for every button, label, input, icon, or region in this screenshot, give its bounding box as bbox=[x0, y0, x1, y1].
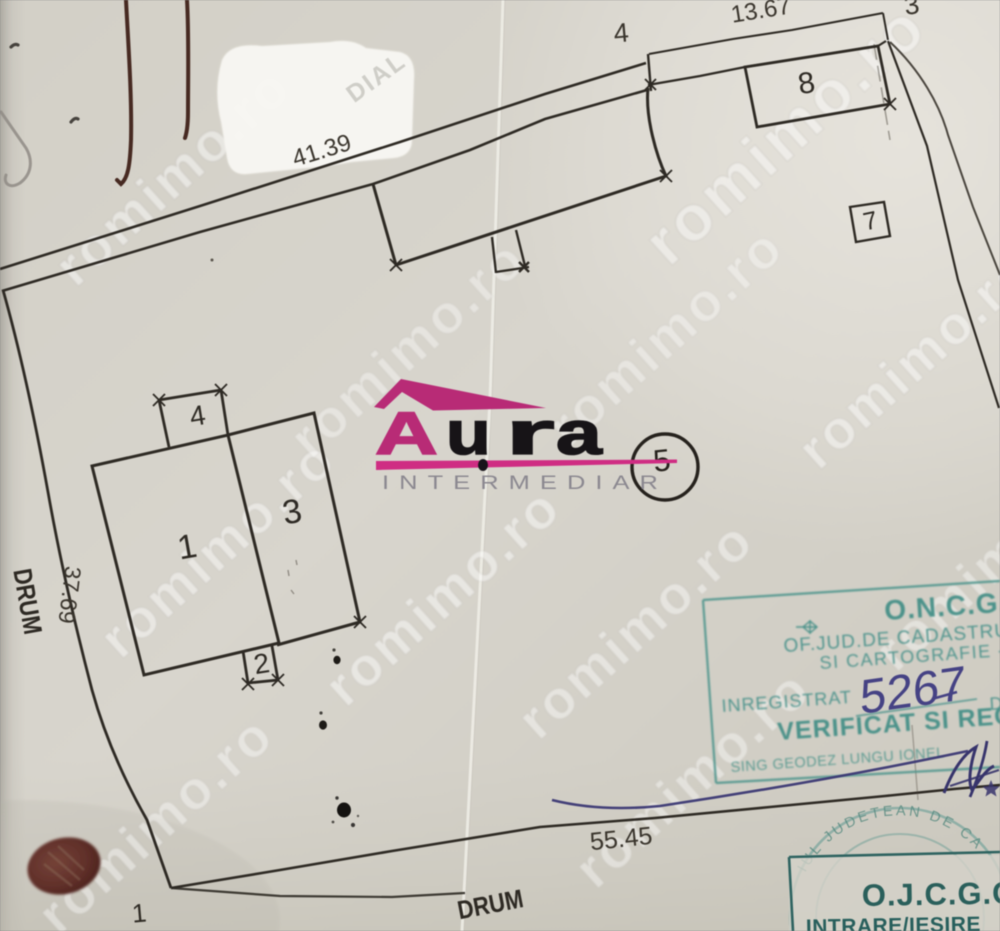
svg-text:INTERMEDIAR: INTERMEDIAR bbox=[382, 473, 668, 494]
svg-text:u: u bbox=[446, 400, 491, 468]
svg-text:1: 1 bbox=[131, 897, 148, 928]
svg-text:r: r bbox=[505, 399, 555, 467]
svg-text:O.J.C.G.C: O.J.C.G.C bbox=[862, 875, 1000, 913]
svg-text:A: A bbox=[375, 399, 438, 466]
svg-text:INTRARE/IESIRE: INTRARE/IESIRE bbox=[806, 913, 981, 931]
svg-text:4: 4 bbox=[612, 17, 630, 48]
svg-text:3: 3 bbox=[902, 0, 921, 21]
svg-text:a: a bbox=[556, 399, 603, 467]
